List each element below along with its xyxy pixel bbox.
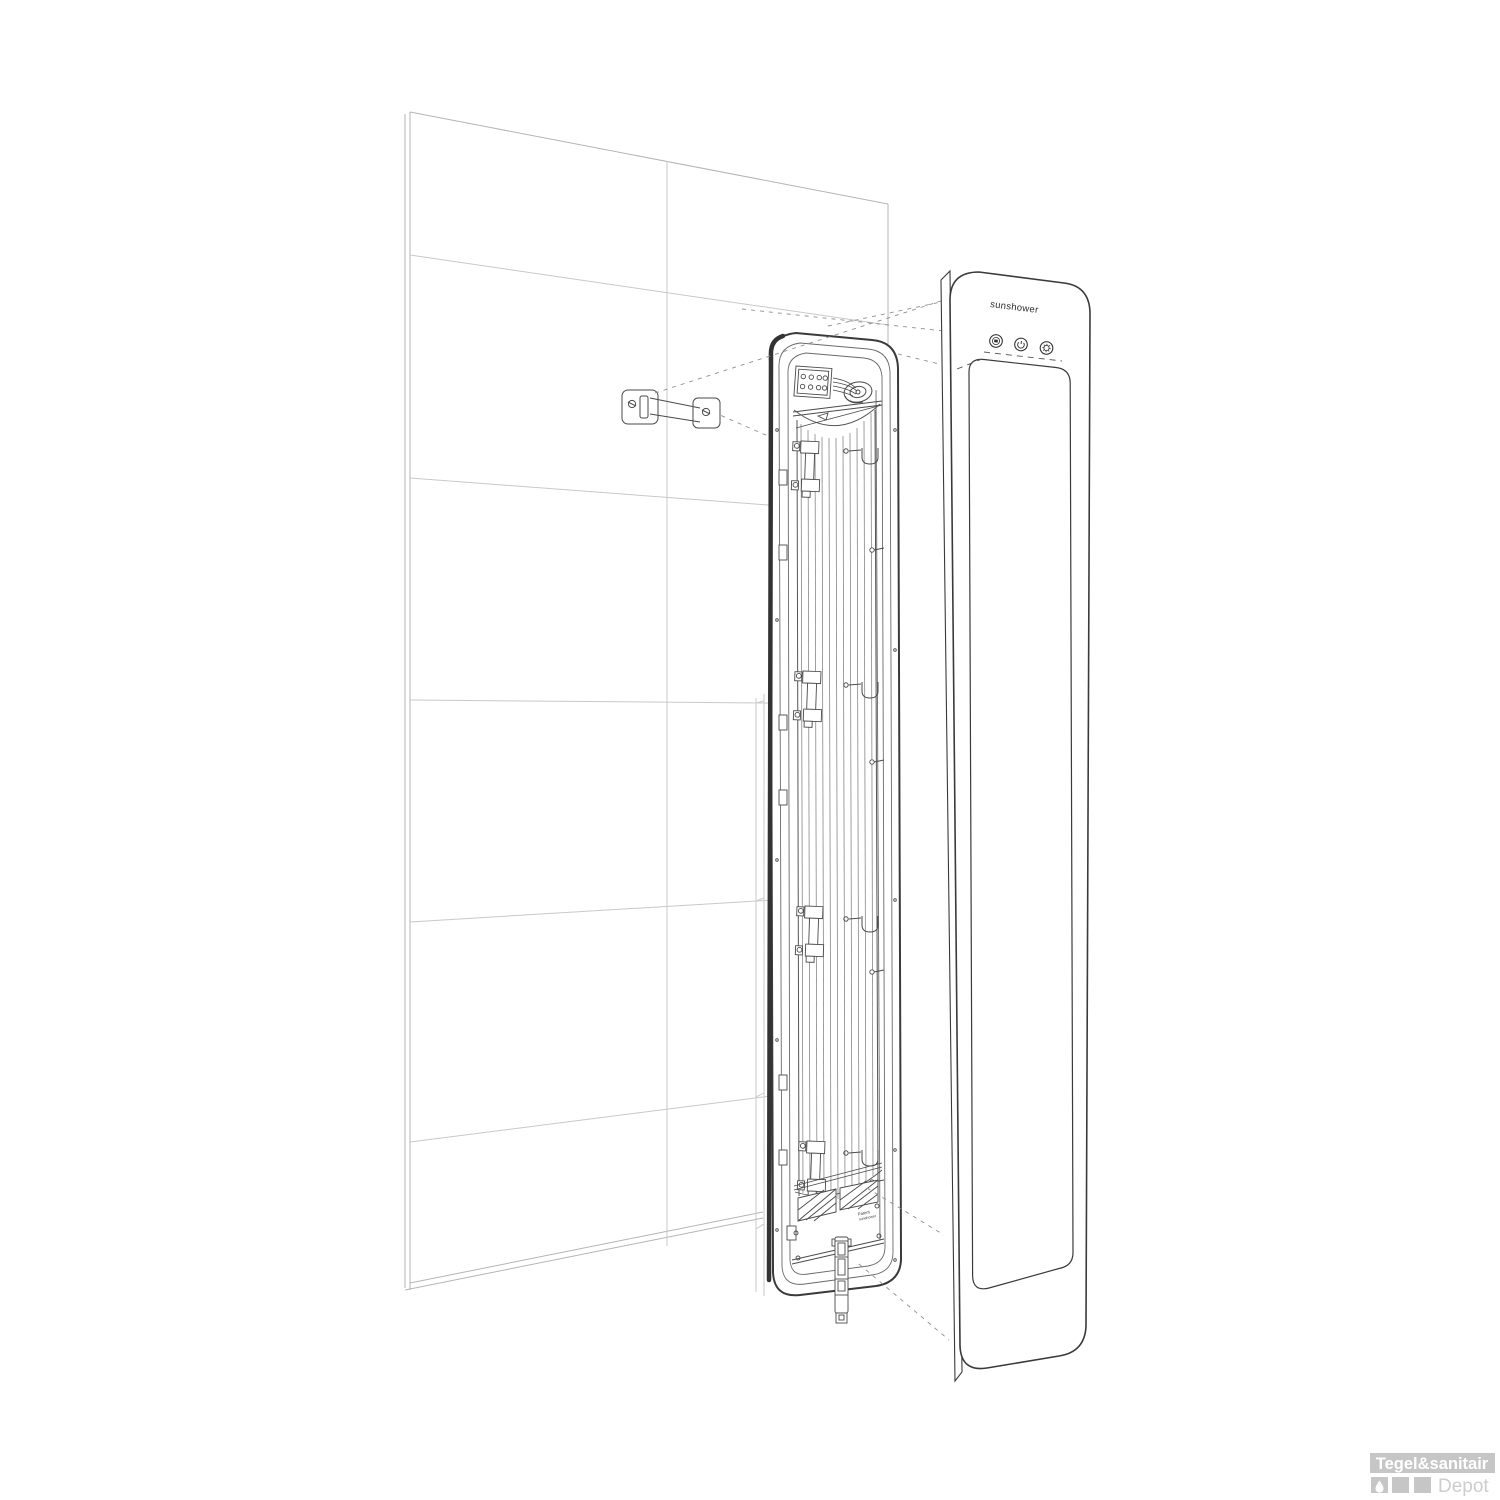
watermark-square — [1392, 1477, 1409, 1493]
exploded-view-illustration: Patent sunshower — [0, 0, 1500, 1500]
bottom-bracket — [832, 1237, 851, 1323]
scene-canvas: Patent sunshower — [0, 0, 1500, 1500]
recessed-unit-housing: Patent sunshower — [769, 333, 901, 1323]
watermark-subtitle: Depot — [1438, 1476, 1489, 1497]
leader-lines-rear — [713, 412, 768, 436]
watermark-square — [1414, 1477, 1431, 1493]
display-icon — [994, 339, 998, 342]
watermark-logo: Tegel&sanitair Depot — [1370, 1453, 1495, 1497]
front-panel: sunshower — [941, 271, 1090, 1381]
niche-side-strip — [756, 694, 764, 1296]
terminal-block — [794, 366, 832, 398]
watermark-title: Tegel&sanitair — [1376, 1455, 1489, 1473]
mounting-bracket — [622, 390, 720, 428]
